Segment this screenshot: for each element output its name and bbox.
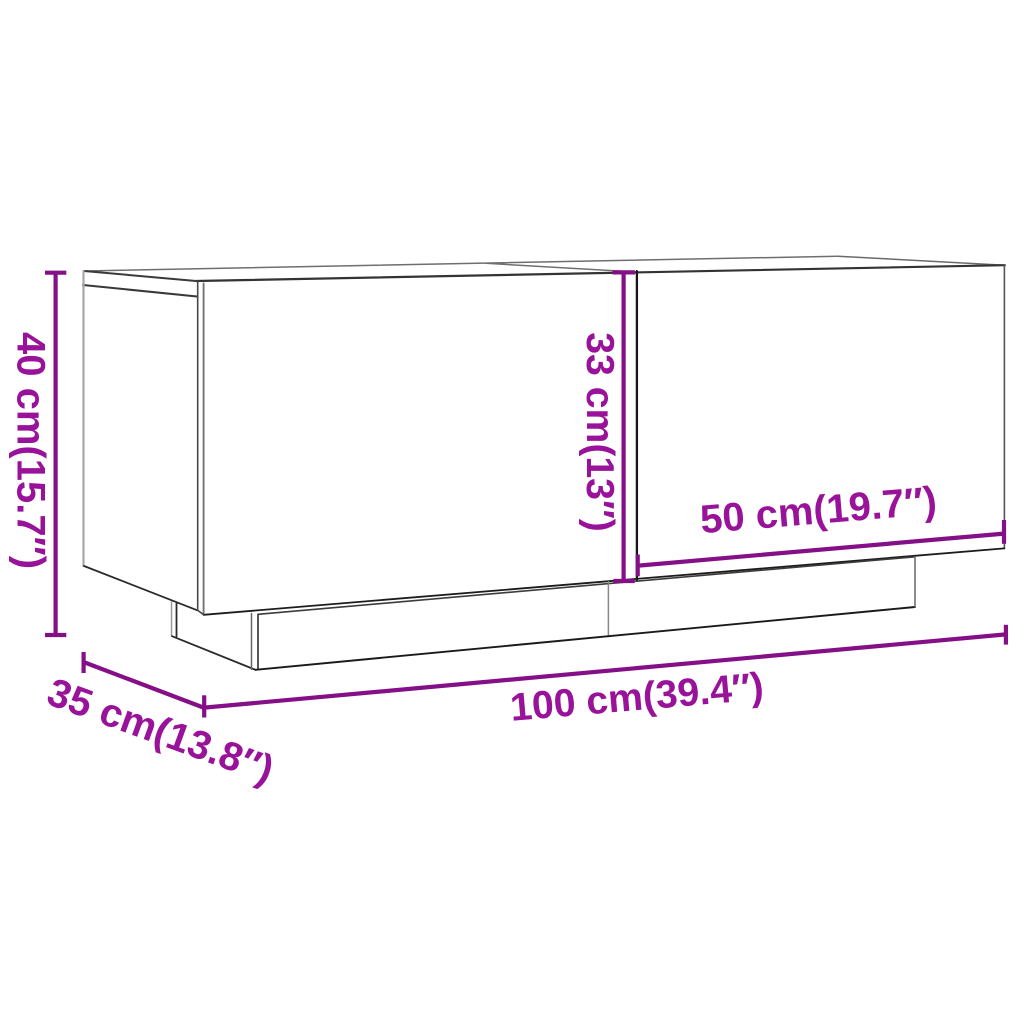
svg-text:40 cm(15.7″): 40 cm(15.7″) [9,332,53,569]
svg-text:33 cm(13″): 33 cm(13″) [578,332,621,532]
